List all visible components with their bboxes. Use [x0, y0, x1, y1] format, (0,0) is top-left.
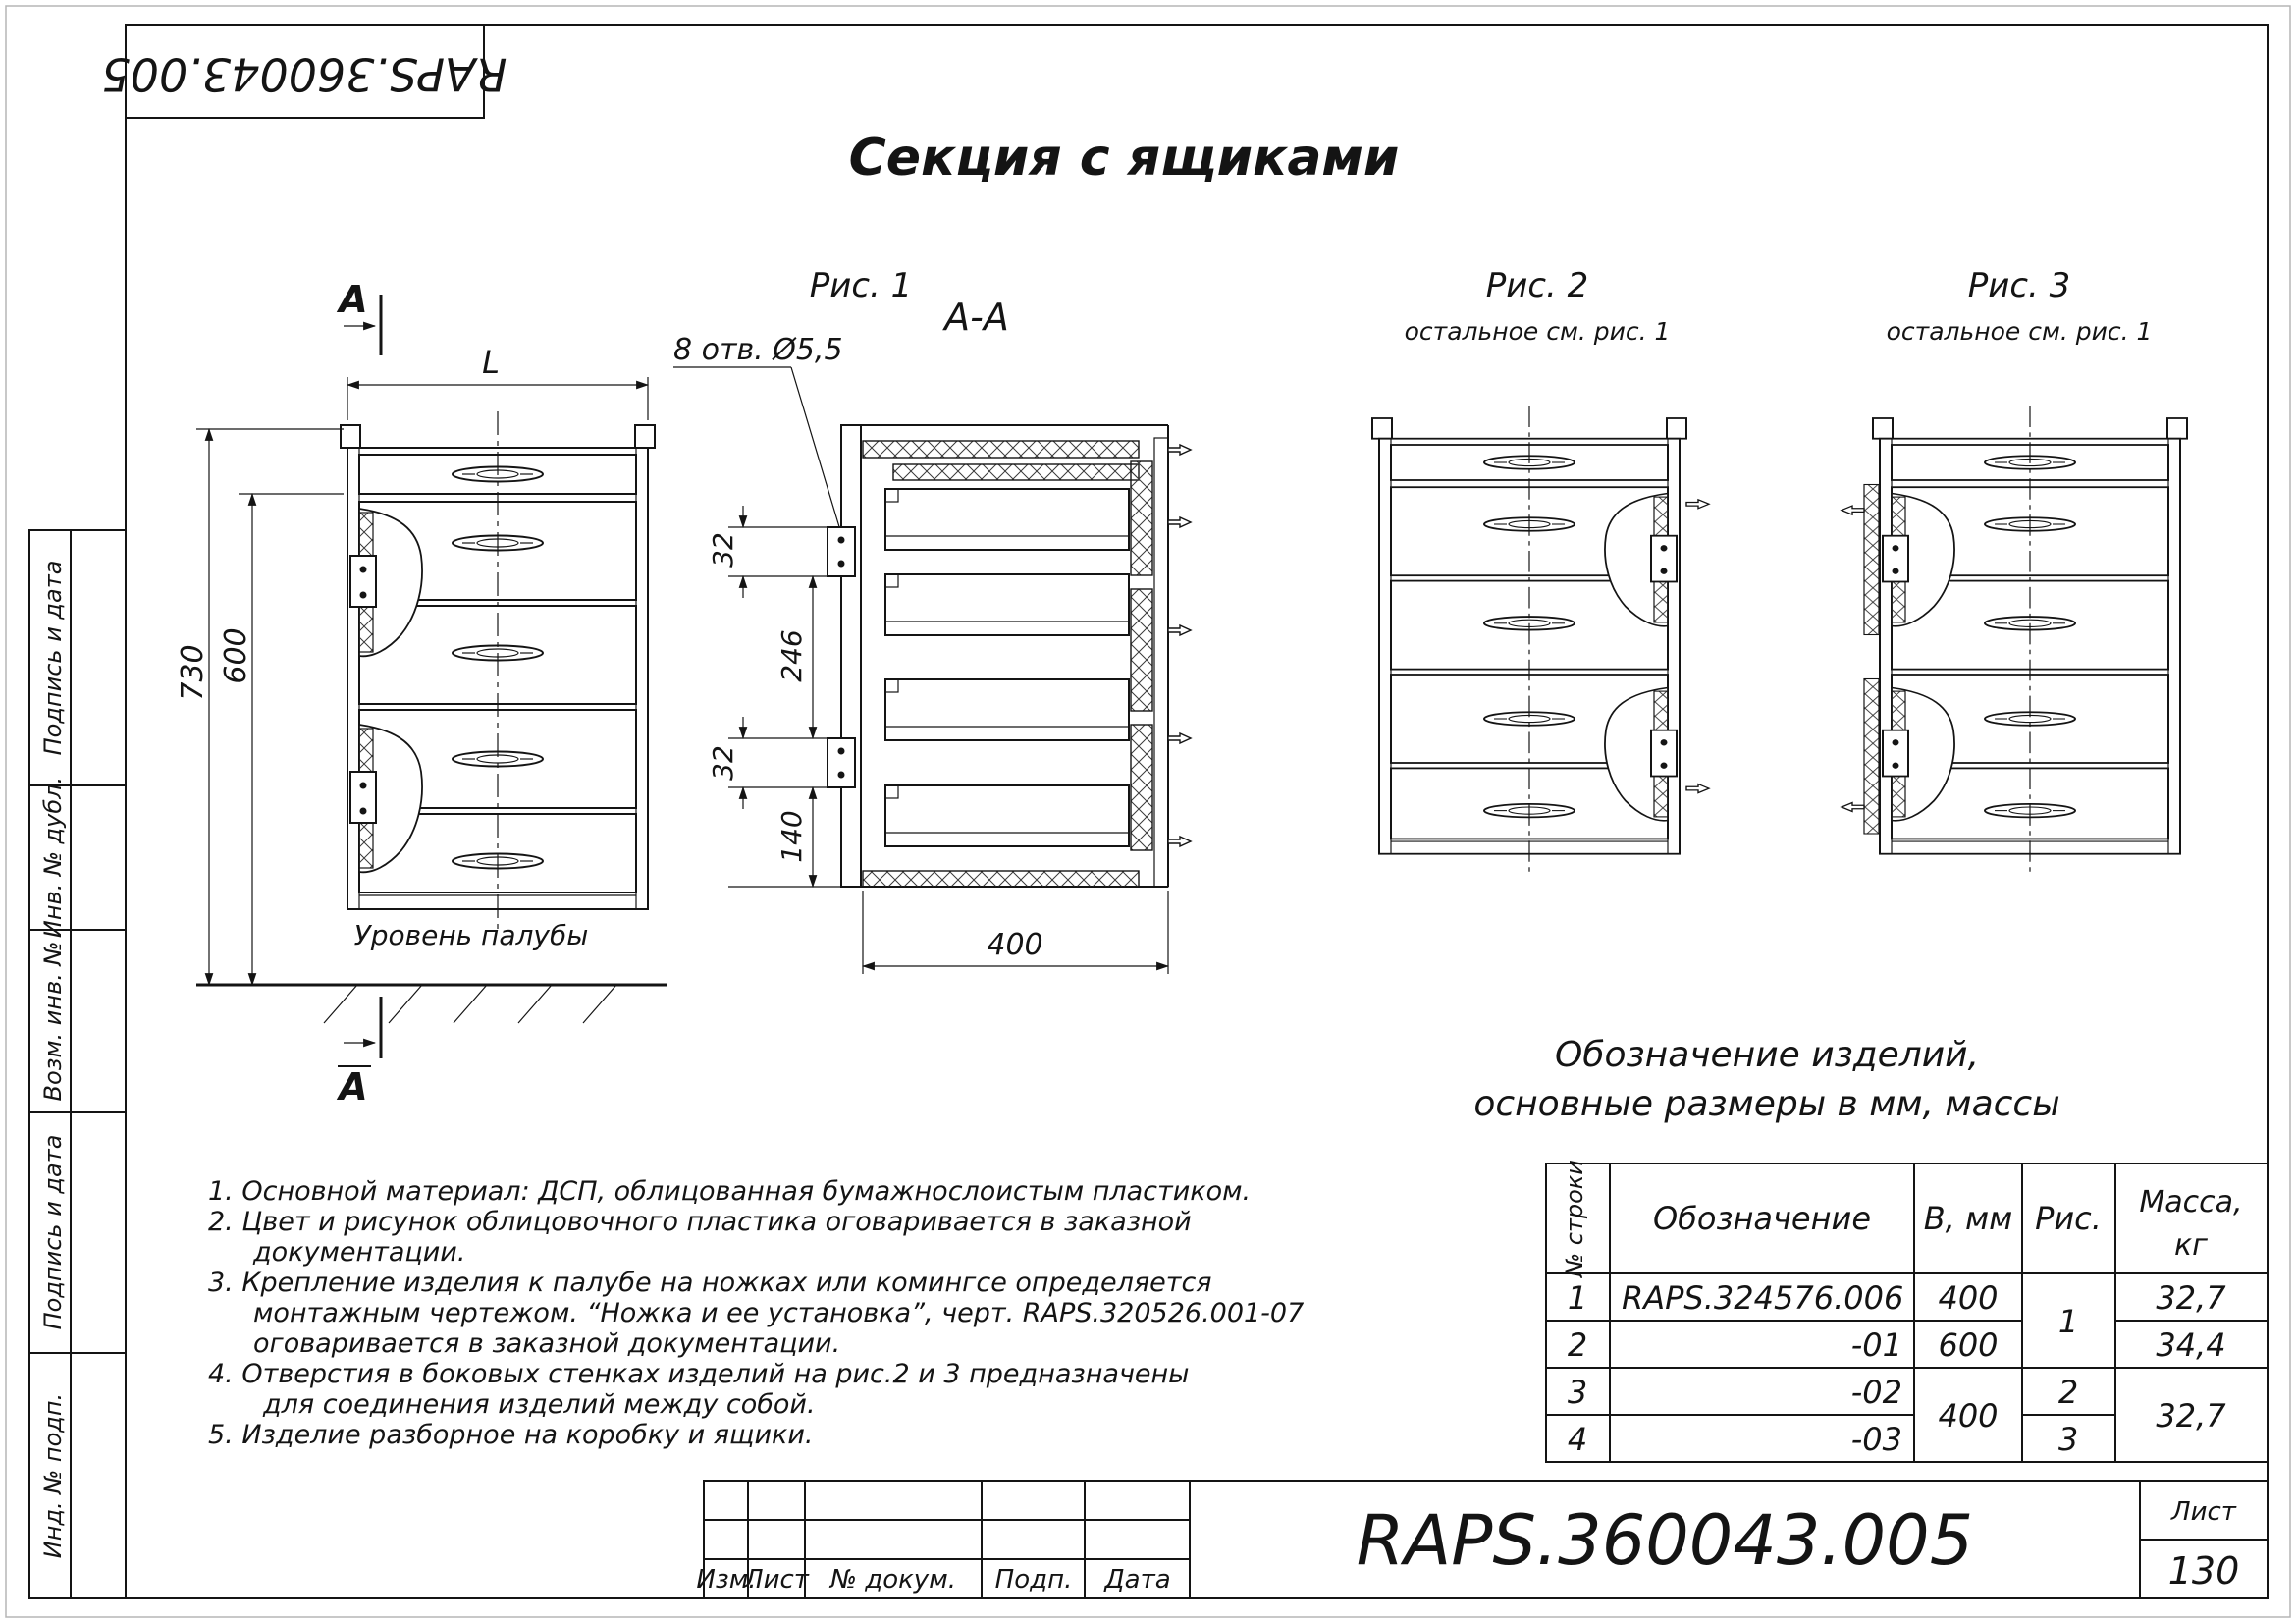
fig1-caption: Рис. 1 [810, 266, 913, 305]
page-title: Секция с ящиками [849, 129, 1400, 188]
col-header-fig: Рис. [2035, 1200, 2102, 1237]
section-drawer-1 [885, 489, 1129, 550]
fig2-pin-lower [1686, 784, 1709, 793]
screw-pin [1168, 733, 1191, 743]
cell-row4-designation: -03 [1851, 1421, 1902, 1458]
cell-row2-mass: 34,4 [2156, 1326, 2225, 1364]
notes-block: 1. Основной материал: ДСП, облицованная … [208, 1176, 1304, 1450]
sidebar-label-inv-dubl: Инв. № дубл. [39, 777, 67, 938]
section-drawer-2 [885, 574, 1129, 635]
section-label: A-A [941, 296, 1009, 339]
cell-row4-fig: 3 [2058, 1421, 2078, 1458]
note-line: для соединения изделий между собой. [262, 1389, 816, 1420]
note-line: монтажным чертежом. “Ножка и ее установк… [253, 1298, 1304, 1328]
note-line: 4. Отверстия в боковых стенках изделий н… [208, 1359, 1190, 1389]
col-header-mass-2: кг [2174, 1228, 2208, 1263]
screw-pin [1168, 837, 1191, 846]
sidebar-label-vozm-inv: Возм. инв. № [39, 942, 67, 1102]
sidebar-label-signature-date-2: Подпись и дата [39, 1135, 67, 1330]
table-row: 4 -03 3 [1568, 1421, 2078, 1458]
parts-table: № строки Обозначение В, мм Рис. Масса, к… [1546, 1160, 2268, 1462]
col-header-designation: Обозначение [1653, 1200, 1871, 1237]
top-stamp-doc-number: RAPS.360043.005 [101, 48, 507, 101]
col-header-mass-1: Масса, [2139, 1185, 2242, 1219]
fig3-drawing [1842, 406, 2187, 872]
cell-row3-n: 3 [1568, 1374, 1587, 1411]
cell-row4-n: 4 [1568, 1421, 1587, 1458]
cell-row1-n: 1 [1568, 1279, 1587, 1317]
title-block-sheet-number: 130 [2168, 1549, 2240, 1593]
cell-row1-b: 400 [1938, 1279, 1998, 1317]
dim-600: 600 [219, 627, 253, 683]
cell-row2-b: 600 [1938, 1326, 1998, 1364]
technical-drawing: RAPS.360043.005 Подпись и дата Инв. № ду… [0, 0, 2296, 1623]
cell-row3-fig: 2 [2058, 1374, 2078, 1411]
drawing-sheet: RAPS.360043.005 Подпись и дата Инв. № ду… [0, 0, 2296, 1623]
fig2-drawing [1372, 406, 1709, 872]
section-cut-mark-top: A [336, 278, 381, 355]
note-line: 1. Основной материал: ДСП, облицованная … [208, 1176, 1251, 1207]
sidebar-label-ind-podp: Инд. № подп. [39, 1393, 67, 1558]
screw-pin [1168, 625, 1191, 635]
title-block: Изм. Лист № докум. Подп. Дата RAPS.36004… [696, 1481, 2268, 1598]
sidebar-stamp-columns: Подпись и дата Инв. № дубл. Возм. инв. №… [29, 530, 126, 1598]
deck-level-label: Уровень палубы [354, 919, 589, 951]
title-block-sheet-label: Лист [2170, 1497, 2237, 1527]
cell-row3-designation: -02 [1851, 1374, 1902, 1411]
note-line: 2. Цвет и рисунок облицовочного пластика… [208, 1207, 1192, 1237]
section-view [828, 425, 1191, 887]
section-drawer-4 [885, 785, 1129, 846]
note-line: оговаривается в заказной документации. [253, 1328, 840, 1359]
parts-table-heading-1: Обозначение изделий, [1555, 1035, 1979, 1075]
table-row: 2 -01 600 34,4 [1568, 1326, 2226, 1364]
dim-730: 730 [176, 644, 210, 700]
section-letter-top: A [336, 278, 367, 321]
fig3-note: остальное см. рис. 1 [1887, 317, 2153, 346]
section-drawer-3 [885, 679, 1129, 740]
fig2-pin-upper [1686, 500, 1709, 509]
note-line: 3. Крепление изделия к палубе на ножках … [208, 1268, 1212, 1298]
section-letter-bottom: A [336, 1065, 367, 1109]
dim-140: 140 [775, 810, 808, 862]
note-line: 5. Изделие разборное на коробку и ящики. [208, 1420, 813, 1450]
title-block-col-list: Лист [743, 1565, 810, 1595]
cell-row1-designation: RAPS.324576.006 [1622, 1279, 1903, 1317]
dim-32-mid: 32 [707, 745, 739, 781]
fig1-drawing [341, 411, 655, 930]
fig3-pin-lower [1842, 803, 1864, 812]
table-row: 1 RAPS.324576.006 400 32,7 [1568, 1279, 2226, 1317]
fig3-pin-upper [1842, 506, 1864, 514]
cell-row2-designation: -01 [1851, 1326, 1902, 1364]
table-row: 3 -02 2 [1568, 1374, 2078, 1411]
title-block-col-docnum: № докум. [828, 1565, 956, 1595]
fig2-note: остальное см. рис. 1 [1405, 317, 1671, 346]
holes-note: 8 отв. Ø5,5 [673, 333, 843, 367]
cell-b-merged-34: 400 [1938, 1397, 1998, 1434]
cell-fig-merged-12: 1 [2058, 1303, 2078, 1340]
section-cut-mark-bottom: A [336, 997, 381, 1109]
col-header-b: В, мм [1924, 1200, 2013, 1237]
title-block-col-data: Дата [1103, 1565, 1170, 1595]
screw-pin [1168, 445, 1191, 455]
note-line: документации. [252, 1237, 465, 1268]
screw-pin [1168, 517, 1191, 527]
cell-row1-mass: 32,7 [2156, 1279, 2226, 1317]
dim-246: 246 [775, 629, 808, 681]
deck-level: Уровень палубы [196, 919, 667, 1023]
holes-callout: 8 отв. Ø5,5 [673, 333, 843, 530]
cell-mass-merged-34: 32,7 [2156, 1397, 2226, 1434]
dim-400: 400 [987, 928, 1042, 962]
fig2-caption: Рис. 2 [1486, 266, 1589, 305]
dim-32-top: 32 [707, 532, 739, 568]
col-header-row-number: № строки [1561, 1160, 1588, 1279]
title-block-col-podp: Подп. [995, 1565, 1073, 1595]
parts-table-heading-2: основные размеры в мм, массы [1473, 1084, 2059, 1124]
sidebar-label-signature-date-1: Подпись и дата [39, 561, 67, 756]
dim-L: L [482, 344, 500, 381]
cell-row2-n: 2 [1568, 1326, 1587, 1364]
title-block-doc-number: RAPS.360043.005 [1357, 1500, 1974, 1581]
top-stamp: RAPS.360043.005 [101, 25, 507, 118]
fig3-caption: Рис. 3 [1968, 266, 2071, 305]
